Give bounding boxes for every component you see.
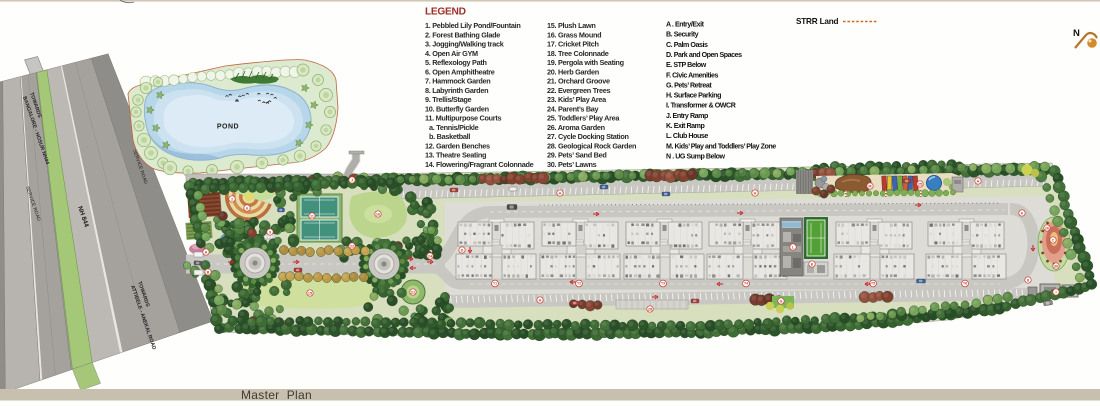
svg-text:LEGEND: LEGEND bbox=[425, 7, 466, 18]
svg-text:T3: T3 bbox=[661, 282, 665, 286]
svg-text:4. Open Air GYM: 4. Open Air GYM bbox=[425, 49, 478, 58]
svg-text:15. Plush Lawn: 15. Plush Lawn bbox=[547, 21, 596, 30]
svg-text:C: C bbox=[1052, 238, 1055, 242]
svg-text:A . Entry/Exit: A . Entry/Exit bbox=[666, 21, 705, 29]
svg-text:13. Theatre Seating: 13. Theatre Seating bbox=[425, 151, 486, 160]
svg-text:16. Grass Mound: 16. Grass Mound bbox=[547, 30, 601, 39]
svg-text:N: N bbox=[1073, 28, 1080, 39]
svg-text:H: H bbox=[559, 191, 562, 195]
svg-text:8. Labyrinth Garden: 8. Labyrinth Garden bbox=[425, 86, 488, 95]
svg-text:G. Pets’ Retreat: G. Pets’ Retreat bbox=[666, 81, 712, 89]
svg-text:T1: T1 bbox=[493, 282, 497, 286]
svg-text:Master Plan: Master Plan bbox=[241, 388, 312, 402]
svg-text:D. Park and Open Spaces: D. Park and Open Spaces bbox=[666, 51, 742, 59]
svg-text:J. Entry Ramp: J. Entry Ramp bbox=[666, 112, 709, 120]
svg-text:22: 22 bbox=[350, 244, 354, 248]
svg-text:M: M bbox=[868, 184, 871, 188]
svg-text:30. Pets’ Lawns: 30. Pets’ Lawns bbox=[547, 160, 597, 169]
svg-text:7. Hammock Garden: 7. Hammock Garden bbox=[425, 77, 490, 86]
svg-text:C. Palm Oasis: C. Palm Oasis bbox=[666, 41, 708, 49]
svg-text:22. Evergreen Trees: 22. Evergreen Trees bbox=[547, 86, 611, 95]
svg-text:24. Parent’s Bay: 24. Parent’s Bay bbox=[547, 104, 600, 113]
svg-text:E: E bbox=[811, 262, 814, 266]
svg-text:B. Security: B. Security bbox=[666, 31, 699, 39]
svg-text:21: 21 bbox=[411, 290, 415, 294]
svg-text:L. Club House: L. Club House bbox=[666, 132, 708, 140]
svg-text:30: 30 bbox=[1054, 264, 1058, 268]
svg-text:H: H bbox=[977, 179, 980, 183]
svg-text:20. Herb Garden: 20. Herb Garden bbox=[547, 67, 599, 76]
svg-text:8: 8 bbox=[1027, 278, 1029, 282]
svg-text:25: 25 bbox=[918, 182, 922, 186]
svg-text:T2: T2 bbox=[577, 282, 581, 286]
svg-text:25. Toddlers’ Play Area: 25. Toddlers’ Play Area bbox=[547, 114, 620, 123]
svg-text:STRR Land: STRR Land bbox=[796, 17, 839, 26]
svg-text:F. Civic Amenities: F. Civic Amenities bbox=[666, 71, 718, 79]
svg-text:POND: POND bbox=[217, 124, 239, 131]
svg-text:B: B bbox=[207, 270, 210, 274]
svg-text:16: 16 bbox=[376, 212, 380, 216]
svg-text:G: G bbox=[780, 299, 783, 303]
svg-text:T6: T6 bbox=[963, 282, 967, 286]
svg-text:M. Kids’ Play and Toddlers’ Pl: M. Kids’ Play and Toddlers’ Play Zone bbox=[666, 142, 776, 150]
svg-text:21. Orchard Groove: 21. Orchard Groove bbox=[547, 77, 610, 86]
svg-text:T4: T4 bbox=[744, 282, 748, 286]
svg-text:12. Garden Benches: 12. Garden Benches bbox=[425, 141, 490, 150]
svg-text:T5: T5 bbox=[871, 282, 875, 286]
svg-text:11: 11 bbox=[310, 214, 314, 218]
svg-text:19. Pergola with Seating: 19. Pergola with Seating bbox=[547, 58, 624, 67]
svg-text:10. Butterfly Garden: 10. Butterfly Garden bbox=[425, 104, 489, 113]
svg-text:17. Cricket Pitch: 17. Cricket Pitch bbox=[547, 40, 599, 49]
svg-text:18. Tree Colonnade: 18. Tree Colonnade bbox=[547, 49, 609, 58]
svg-text:6: 6 bbox=[246, 206, 248, 210]
svg-text:2. Forest Bathing Glade: 2. Forest Bathing Glade bbox=[425, 30, 500, 39]
svg-text:I: I bbox=[1055, 290, 1056, 294]
svg-text:11. Multipurpose Courts: 11. Multipurpose Courts bbox=[425, 114, 501, 123]
svg-text:3. Jogging/Walking track: 3. Jogging/Walking track bbox=[425, 40, 505, 49]
svg-text:A: A bbox=[205, 250, 208, 254]
svg-text:J: J bbox=[351, 178, 353, 182]
svg-text:27. Cycle Docking Station: 27. Cycle Docking Station bbox=[547, 132, 629, 141]
svg-text:29. Pets’ Sand Bed: 29. Pets’ Sand Bed bbox=[547, 151, 607, 160]
svg-text:I. Transformer & OWCR: I. Transformer & OWCR bbox=[666, 102, 736, 110]
svg-text:28: 28 bbox=[648, 307, 652, 311]
svg-text:23. Kids’ Play Area: 23. Kids’ Play Area bbox=[547, 95, 607, 104]
svg-text:15: 15 bbox=[308, 291, 312, 295]
svg-text:K. Exit Ramp: K. Exit Ramp bbox=[666, 122, 705, 130]
svg-text:E. STP Below: E. STP Below bbox=[666, 61, 707, 69]
svg-text:28. Geological Rock Garden: 28. Geological Rock Garden bbox=[547, 141, 636, 150]
svg-text:9: 9 bbox=[269, 230, 271, 234]
svg-text:6. Open Amphitheatre: 6. Open Amphitheatre bbox=[425, 67, 495, 76]
svg-text:26: 26 bbox=[1045, 226, 1049, 230]
svg-text:9. Trellis/Stage: 9. Trellis/Stage bbox=[425, 95, 472, 104]
svg-text:H. Surface Parking: H. Surface Parking bbox=[666, 92, 721, 100]
svg-text:14. Flowering/Fragrant Colonna: 14. Flowering/Fragrant Colonnade bbox=[425, 160, 534, 169]
svg-text:D: D bbox=[461, 248, 464, 252]
svg-text:H: H bbox=[754, 191, 757, 195]
svg-text:5. Reflexology Path: 5. Reflexology Path bbox=[425, 58, 487, 67]
svg-text:K: K bbox=[1021, 211, 1024, 215]
svg-text:2: 2 bbox=[231, 197, 233, 201]
svg-text:26. Aroma Garden: 26. Aroma Garden bbox=[547, 123, 605, 132]
svg-text:H: H bbox=[539, 298, 542, 302]
svg-text:b. Basketball: b. Basketball bbox=[429, 132, 470, 141]
svg-text:N . UG Sump Below: N . UG Sump Below bbox=[666, 152, 725, 160]
svg-text:a. Tennis/Pickle: a. Tennis/Pickle bbox=[429, 123, 479, 132]
svg-text:1. Pebbled Lily Pond/Fountain: 1. Pebbled Lily Pond/Fountain bbox=[425, 21, 521, 30]
